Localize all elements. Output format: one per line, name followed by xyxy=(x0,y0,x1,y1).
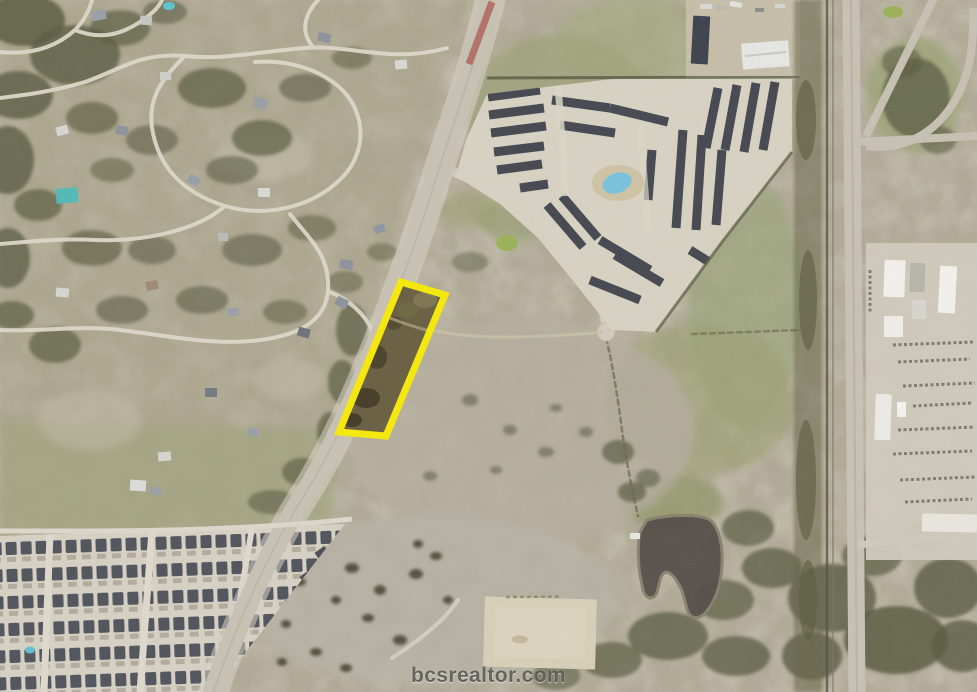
aerial-map: bcsrealtor.com xyxy=(0,0,977,692)
photo-grain xyxy=(0,0,977,692)
aerial-photo-layers xyxy=(0,0,977,692)
watermark: bcsrealtor.com xyxy=(0,664,977,688)
